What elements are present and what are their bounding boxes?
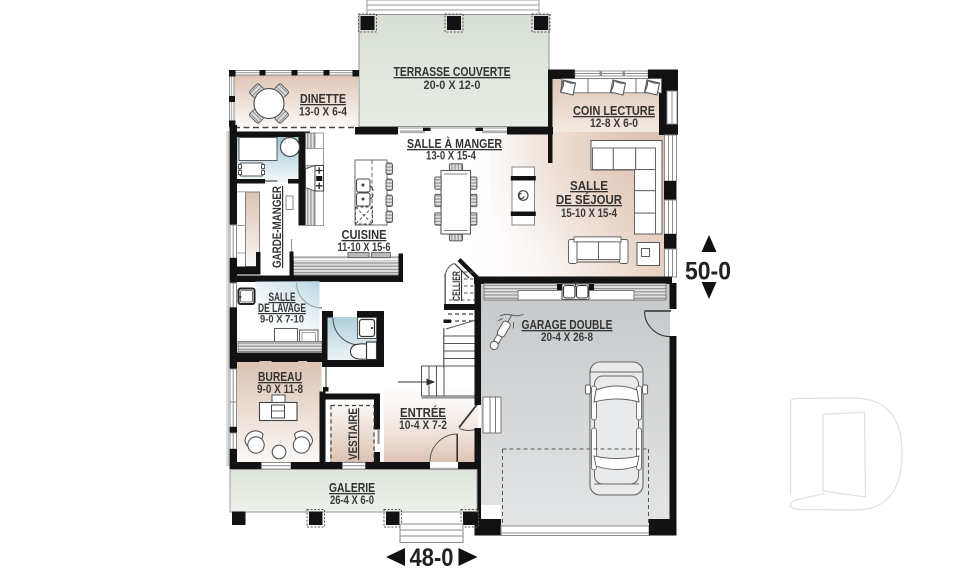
svg-text:15-10 X 15-4: 15-10 X 15-4 [561, 208, 618, 220]
svg-text:DINETTE: DINETTE [300, 91, 346, 106]
svg-text:CUISINE: CUISINE [342, 227, 387, 242]
svg-text:9-0 X 11-8: 9-0 X 11-8 [257, 384, 304, 396]
svg-text:20-0 X 12-0: 20-0 X 12-0 [424, 80, 481, 92]
svg-text:13-0 X 15-4: 13-0 X 15-4 [426, 151, 476, 163]
svg-text:10-4 X 7-2: 10-4 X 7-2 [399, 420, 447, 432]
svg-text:VESTIAIRE: VESTIAIRE [348, 408, 360, 460]
svg-text:CELLIER: CELLIER [451, 271, 463, 301]
svg-text:13-0 X 6-4: 13-0 X 6-4 [299, 107, 348, 119]
svg-text:ENTRÉE: ENTRÉE [400, 405, 446, 420]
svg-text:GALERIE: GALERIE [329, 480, 375, 495]
svg-text:SALLE À MANGER: SALLE À MANGER [407, 136, 502, 151]
svg-text:TERRASSE COUVERTE: TERRASSE COUVERTE [394, 64, 511, 79]
svg-text:SALLE: SALLE [570, 178, 608, 193]
svg-text:BUREAU: BUREAU [258, 369, 302, 384]
svg-text:9-0 X 7-10: 9-0 X 7-10 [260, 314, 304, 326]
svg-text:50-0: 50-0 [685, 258, 731, 286]
svg-text:12-8 X 6-0: 12-8 X 6-0 [590, 118, 638, 130]
svg-text:GARAGE DOUBLE: GARAGE DOUBLE [522, 317, 613, 332]
svg-text:COIN LECTURE: COIN LECTURE [573, 103, 655, 118]
svg-text:GARDE-MANGER: GARDE-MANGER [270, 186, 284, 268]
svg-text:20-4 X 26-8: 20-4 X 26-8 [541, 332, 594, 344]
svg-text:48-0: 48-0 [410, 544, 454, 569]
svg-text:DE SÉJOUR: DE SÉJOUR [556, 192, 623, 207]
svg-text:26-4 X 6-0: 26-4 X 6-0 [330, 495, 374, 507]
